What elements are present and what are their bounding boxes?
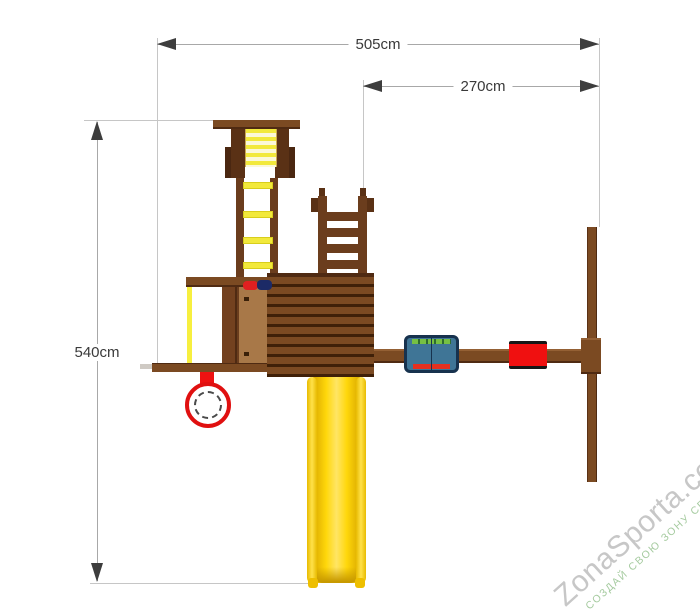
toy-steering-blue — [257, 280, 272, 290]
platform-door — [237, 287, 267, 364]
extension-line-left-vertical — [157, 38, 158, 368]
ladder-rail-left — [318, 196, 327, 277]
extension-line-top-left — [84, 120, 213, 121]
swing-seat-blue — [404, 335, 459, 373]
arrow-left-icon — [363, 80, 382, 92]
slide-rail-left — [307, 377, 317, 583]
arrow-left-icon — [157, 38, 176, 50]
arrow-down-icon — [91, 563, 103, 582]
slide-bed — [313, 377, 360, 583]
arrow-right-icon — [580, 80, 599, 92]
dimension-label-overall-width: 505cm — [348, 36, 407, 53]
watermark-slogan: СОЗДАЙ СВОЮ ЗОНУ СПОРТА — [583, 413, 700, 612]
swing-post-joint — [581, 338, 601, 374]
extension-line-right-vertical — [599, 38, 600, 227]
extension-line-mid-vertical — [363, 80, 364, 195]
extension-line-baseline — [90, 583, 308, 584]
toy-steering-red — [243, 281, 258, 290]
platform-roof — [267, 273, 374, 377]
platform-bottom-board — [152, 363, 267, 372]
tower-post-left — [231, 129, 245, 178]
slide-rail-right — [356, 377, 366, 583]
ladder-rung — [243, 211, 273, 218]
slide-foot-right — [355, 578, 365, 588]
ladder-rung — [243, 182, 273, 189]
platform-wall-post — [222, 287, 237, 364]
ladder-rung — [327, 212, 358, 221]
platform-side-panel-yellow — [187, 287, 192, 364]
ladder-rung — [327, 260, 358, 269]
tower-top-beam — [213, 120, 300, 129]
slide-bottom-lip — [313, 567, 360, 583]
ladder-tab-right — [366, 198, 374, 212]
ladder-rung — [243, 237, 273, 244]
tower-bracket-left — [225, 147, 231, 178]
tower-post-right — [275, 129, 289, 178]
rope-ladder-top-rungs — [245, 129, 277, 167]
ladder-rung — [327, 244, 358, 253]
arrow-up-icon — [91, 121, 103, 140]
door-hinge — [244, 352, 249, 356]
ladder-rung — [243, 262, 273, 269]
swing-seat-red — [509, 341, 547, 369]
ladder-rung — [327, 228, 358, 237]
swing-seat-divider — [431, 338, 432, 370]
dimension-label-right-section-width: 270cm — [453, 78, 512, 95]
tower-bracket-right — [289, 147, 295, 178]
basketball-net — [194, 391, 222, 419]
arrow-right-icon — [580, 38, 599, 50]
door-hinge — [244, 297, 249, 301]
slide-foot-left — [308, 578, 318, 588]
dimension-label-overall-depth: 540cm — [67, 344, 126, 361]
watermark: ZonaSporta.com СОЗДАЙ СВОЮ ЗОНУ СПОРТА — [548, 387, 700, 613]
playground-top-view-diagram: 505cm 270cm 540cm — [0, 0, 700, 613]
ladder-rail-right — [358, 196, 367, 277]
watermark-brand: ZonaSporta.com — [548, 387, 700, 613]
